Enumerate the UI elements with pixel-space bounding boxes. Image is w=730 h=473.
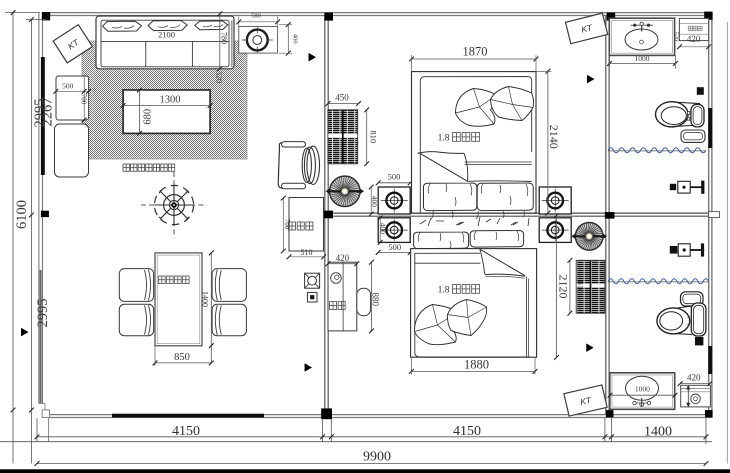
svg-text:420: 420 <box>687 373 701 383</box>
svg-text:420: 420 <box>687 34 701 44</box>
svg-text:850: 850 <box>174 352 190 363</box>
svg-text:9900: 9900 <box>363 450 391 465</box>
svg-text:700: 700 <box>283 219 291 230</box>
svg-text:1000: 1000 <box>635 385 650 394</box>
svg-text:520: 520 <box>673 32 680 42</box>
svg-text:420: 420 <box>336 253 350 263</box>
svg-text:700: 700 <box>80 94 88 105</box>
svg-text:500: 500 <box>388 242 401 252</box>
svg-text:880: 880 <box>371 293 381 307</box>
svg-text:1880: 1880 <box>464 357 489 371</box>
svg-text:500: 500 <box>388 172 401 182</box>
svg-text:680: 680 <box>143 109 154 125</box>
svg-text:2267: 2267 <box>40 98 56 127</box>
svg-text:2120: 2120 <box>557 275 571 299</box>
svg-text:1000: 1000 <box>635 54 650 63</box>
svg-text:780: 780 <box>220 32 229 44</box>
svg-text:1.8: 1.8 <box>438 286 450 296</box>
svg-text:1400: 1400 <box>200 291 209 307</box>
svg-text:1870: 1870 <box>463 45 488 59</box>
svg-text:4150: 4150 <box>172 424 200 439</box>
svg-text:320: 320 <box>215 71 224 83</box>
svg-text:400: 400 <box>292 34 299 44</box>
svg-text:2100: 2100 <box>158 29 175 39</box>
svg-text:2995: 2995 <box>35 299 51 328</box>
svg-text:580: 580 <box>251 12 261 19</box>
svg-text:6100: 6100 <box>14 200 30 229</box>
svg-text:4150: 4150 <box>453 424 481 439</box>
svg-text:500: 500 <box>62 82 74 91</box>
svg-text:1400: 1400 <box>644 425 672 440</box>
svg-text:450: 450 <box>335 93 349 103</box>
svg-text:510: 510 <box>301 248 313 257</box>
svg-text:810: 810 <box>369 130 379 143</box>
svg-text:400: 400 <box>370 196 379 208</box>
svg-text:810: 810 <box>576 281 586 294</box>
svg-text:2140: 2140 <box>547 125 561 149</box>
svg-text:400: 400 <box>379 223 388 235</box>
svg-text:1300: 1300 <box>160 95 181 106</box>
svg-text:1.8: 1.8 <box>438 134 450 144</box>
